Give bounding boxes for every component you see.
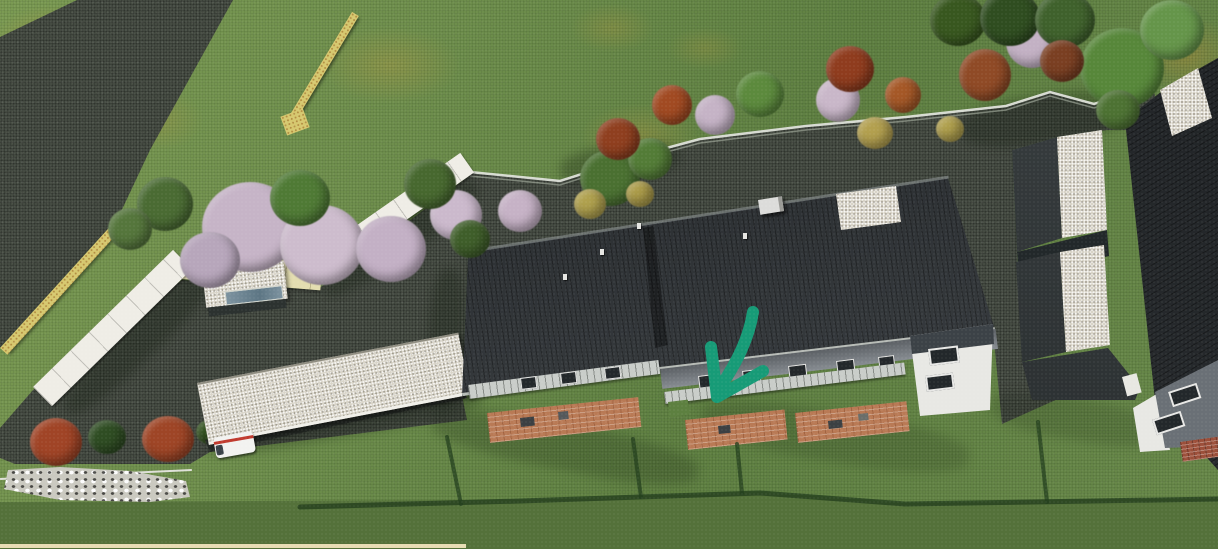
aerial-rendering-scene — [0, 0, 1218, 549]
annotation-arrow — [0, 0, 1218, 549]
